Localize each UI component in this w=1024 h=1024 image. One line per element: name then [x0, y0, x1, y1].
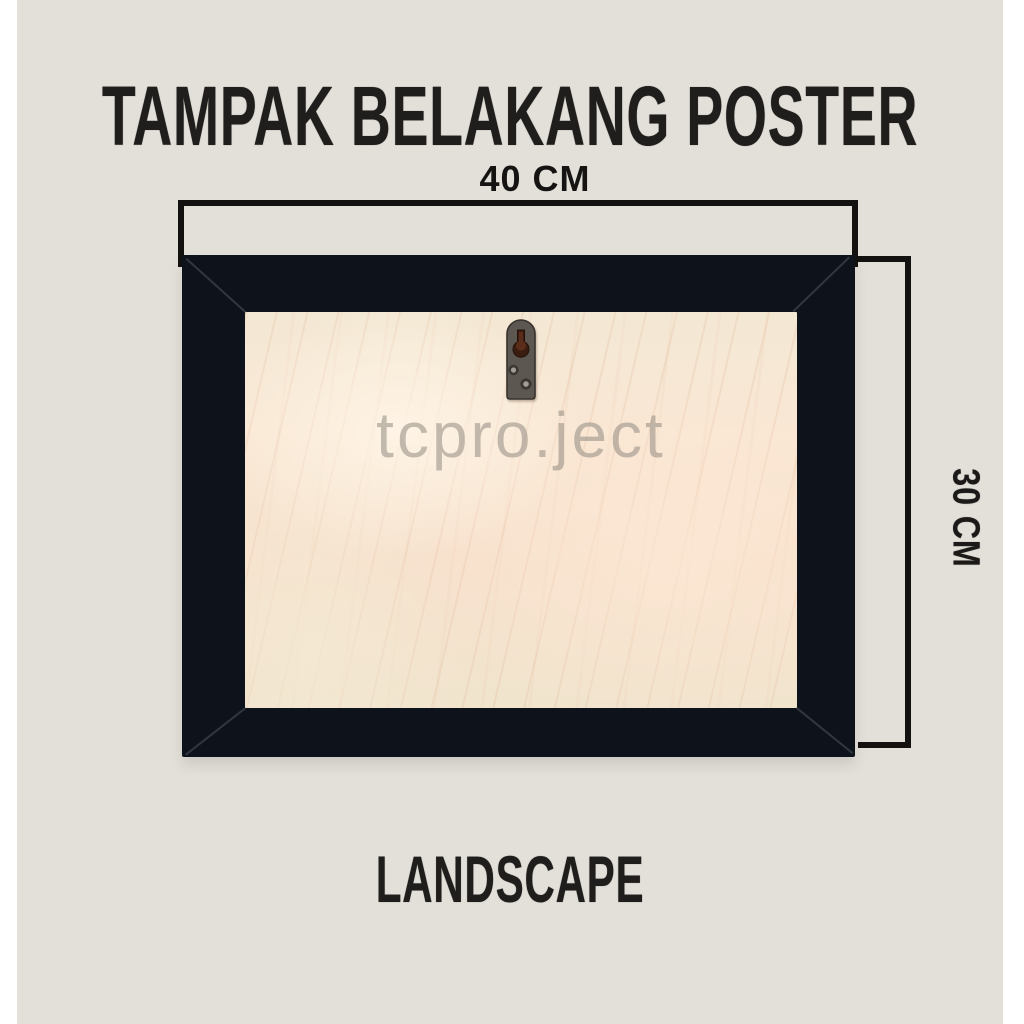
orientation-label: LANDSCAPE: [376, 846, 645, 912]
beige-canvas: TAMPAK BELAKANG POSTER 40 CM 30 CM: [17, 0, 1003, 1024]
page-title: TAMPAK BELAKANG POSTER: [102, 74, 918, 158]
frame-miter-joint: [793, 257, 850, 313]
height-dimension-tick-bottom: [858, 742, 911, 748]
frame-miter-joint: [186, 258, 250, 316]
height-dimension-tick-top: [858, 256, 911, 262]
frame-miter-joint: [185, 707, 246, 755]
height-dimension-label: 30 CM: [944, 468, 987, 567]
frame-miter-joint: [796, 707, 853, 754]
width-dimension-line: [178, 200, 858, 206]
width-dimension-label: 40 CM: [479, 158, 590, 200]
poster-frame-back: tcpro.ject: [182, 255, 855, 757]
watermark-text: tcpro.ject: [376, 398, 666, 472]
keyhole-hanger-icon: [505, 318, 537, 400]
product-diagram-page: TAMPAK BELAKANG POSTER 40 CM 30 CM: [0, 0, 1024, 1024]
height-dimension-line: [905, 256, 911, 748]
plywood-backing: tcpro.ject: [245, 312, 797, 708]
